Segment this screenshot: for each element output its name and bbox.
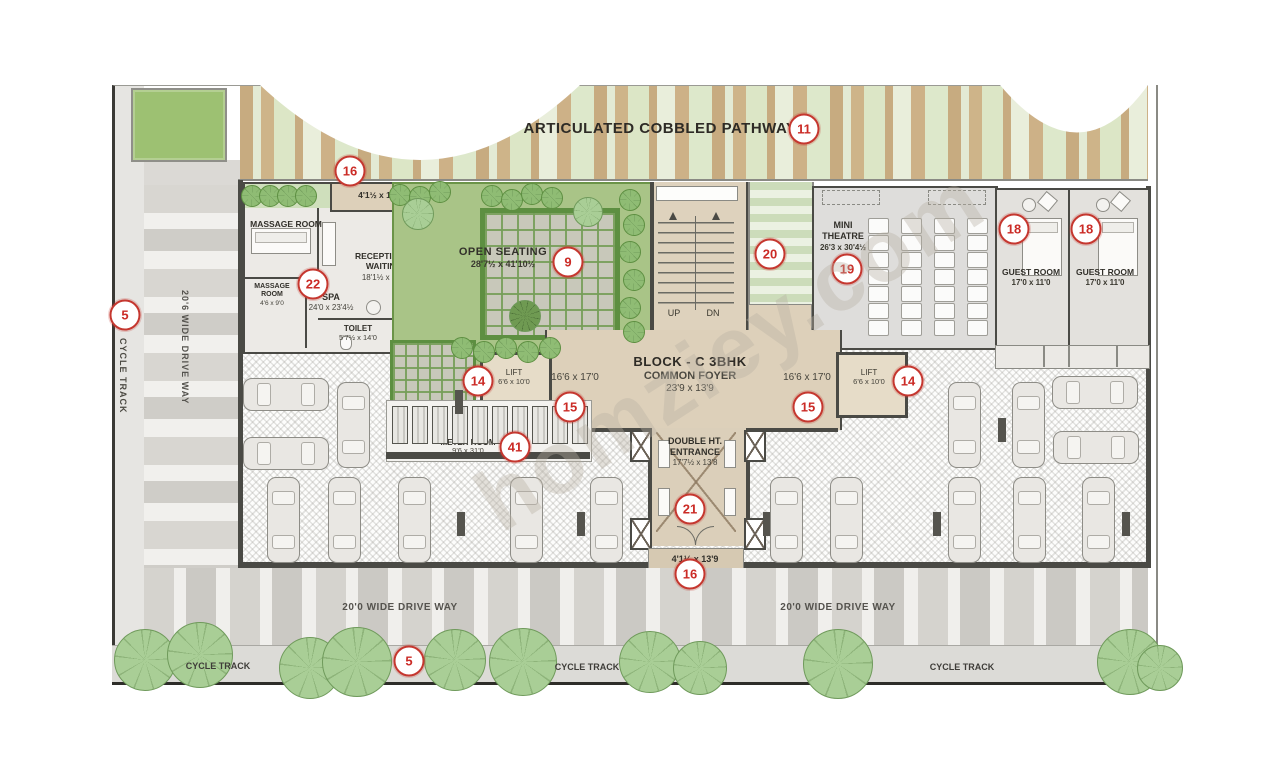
badge-theatre: 19	[832, 254, 863, 285]
tree-icon	[322, 627, 392, 697]
badge-meter-room: 41	[500, 432, 531, 463]
bush-icon	[623, 269, 645, 291]
guest-table	[1096, 198, 1110, 212]
meter-panel	[532, 406, 548, 444]
bush-icon	[517, 341, 539, 363]
column-pillar	[933, 512, 941, 536]
theatre-seat	[901, 218, 922, 234]
column-pillar	[998, 418, 1006, 442]
bottom-driveway-right-label: 20'0 WIDE DRIVE WAY	[780, 602, 895, 614]
car	[1082, 477, 1115, 563]
car	[243, 437, 329, 470]
theatre-seat	[868, 269, 889, 285]
stair-landing	[656, 186, 738, 201]
column-pillar	[1122, 512, 1130, 536]
tree-icon	[673, 641, 727, 695]
floor-plan: CYCLE TRACK 20'6 WIDE DRIVE WAY ARTICULA…	[0, 0, 1280, 772]
badge-entrance: 21	[675, 494, 706, 525]
lawn	[131, 88, 227, 162]
badge-lift-right: 14	[893, 366, 924, 397]
tree-icon	[573, 197, 603, 227]
stair-up-label: UP	[668, 308, 681, 318]
theatre-seat	[934, 320, 955, 336]
theatre-seat	[868, 218, 889, 234]
bush-icon	[473, 341, 495, 363]
meter-panel	[392, 406, 408, 444]
theatre-seat	[934, 218, 955, 234]
car	[328, 477, 361, 563]
car	[337, 382, 370, 468]
entrance-pier	[744, 430, 766, 462]
badge-cycle-left: 5	[110, 300, 141, 331]
theatre-lobby-1	[822, 190, 880, 205]
theatre-seat	[868, 252, 889, 268]
left-driveway-label: 20'6 WIDE DRIVE WAY	[180, 290, 190, 404]
meter-room-dim: 9'6 x 31'0	[452, 447, 484, 455]
tree-icon	[509, 300, 541, 332]
lift-left-dim: 6'6 x 10'0	[498, 378, 530, 386]
badge-open-seating: 9	[553, 247, 584, 278]
tree-icon	[167, 622, 233, 688]
theatre-seat	[967, 286, 988, 302]
open-seating-label: OPEN SEATING	[459, 246, 547, 259]
entrance-label-1: DOUBLE HT.	[668, 436, 722, 446]
guest-room-1-label: GUEST ROOM	[1002, 268, 1060, 278]
foyer-label: COMMON FOYER	[644, 370, 736, 383]
bush-icon	[619, 241, 641, 263]
bush-icon	[451, 337, 473, 359]
block-title: BLOCK - C 3BHK	[633, 355, 746, 370]
massage-room-small-label-2: ROOM	[261, 291, 283, 299]
top-left-band	[144, 160, 240, 185]
badge-wing-right: 15	[793, 392, 824, 423]
guest-table	[1022, 198, 1036, 212]
theatre-seat	[868, 286, 889, 302]
pathway-label: ARTICULATED COBBLED PATHWAY	[524, 120, 797, 137]
entrance-pier	[630, 430, 652, 462]
bath-divider	[1116, 345, 1118, 367]
theatre-seat	[901, 286, 922, 302]
badge-spa: 22	[298, 269, 329, 300]
theatre-seat	[967, 218, 988, 234]
theatre-seat	[901, 303, 922, 319]
lift-right-label: LIFT	[861, 368, 877, 377]
theatre-seat	[868, 320, 889, 336]
stair-steps	[658, 222, 734, 304]
car	[1013, 477, 1046, 563]
cycle-track-label-1: CYCLE TRACK	[186, 661, 251, 671]
spa-tub	[366, 300, 381, 315]
theatre-seat	[934, 286, 955, 302]
car	[267, 477, 300, 563]
badge-entry-strip: 16	[335, 156, 366, 187]
theatre-seat	[934, 269, 955, 285]
car	[948, 477, 981, 563]
column-pillar	[455, 390, 463, 414]
theatre-label-2: THEATRE	[822, 231, 864, 241]
car	[1052, 376, 1138, 409]
lift-left-label: LIFT	[506, 368, 522, 377]
entrance-dim: 17'7½ x 13'8	[673, 459, 718, 468]
car	[830, 477, 863, 563]
bush-icon	[623, 321, 645, 343]
badge-guest-1: 18	[999, 214, 1030, 245]
cycle-track-label-3: CYCLE TRACK	[930, 662, 995, 672]
bush-icon	[539, 337, 561, 359]
bush-icon	[619, 297, 641, 319]
cycle-track-label-2: CYCLE TRACK	[555, 662, 620, 672]
bush-icon	[495, 337, 517, 359]
stair-divider	[695, 216, 696, 310]
tree-icon	[1137, 645, 1183, 691]
theatre-seat	[967, 320, 988, 336]
bottom-driveway-left-label: 20'0 WIDE DRIVE WAY	[342, 602, 457, 614]
bush-icon	[623, 214, 645, 236]
theatre-seat	[967, 269, 988, 285]
bush-icon	[429, 181, 451, 203]
lift-right-dim: 6'6 x 10'0	[853, 378, 885, 386]
bush-icon	[295, 185, 317, 207]
foyer-dim: 23'9 x 13'9	[666, 383, 714, 394]
guest-room-2-dim: 17'0 x 11'0	[1086, 279, 1125, 288]
bush-icon	[501, 189, 523, 211]
car	[590, 477, 623, 563]
wellness-div4	[318, 318, 402, 320]
bath-divider	[1068, 345, 1070, 367]
badge-entrance-strip: 16	[675, 559, 706, 590]
theatre-dim: 26'3 x 30'4½	[820, 244, 866, 253]
toilet-label: TOILET	[344, 324, 372, 333]
theatre-seat	[967, 303, 988, 319]
entrance-label-2: ENTRANCE	[670, 447, 720, 457]
stair-arrow-dn	[712, 212, 720, 220]
guest-room-1-dim: 17'0 x 11'0	[1012, 279, 1051, 288]
theatre-seat	[967, 235, 988, 251]
car	[1053, 431, 1139, 464]
car	[243, 378, 329, 411]
massage-bed	[251, 228, 311, 254]
theatre-seat	[901, 320, 922, 336]
car	[1012, 382, 1045, 468]
stair-dn-label: DN	[707, 308, 720, 318]
column-pillar	[577, 512, 585, 536]
wing-right-dim: 16'6 x 17'0	[783, 372, 831, 383]
property-line-right	[1156, 85, 1158, 683]
bush-icon	[541, 187, 563, 209]
theatre-seat	[901, 252, 922, 268]
entrance-bench	[724, 488, 736, 516]
wing-left-dim: 16'6 x 17'0	[551, 372, 599, 383]
badge-guest-2: 18	[1071, 214, 1102, 245]
column-pillar	[457, 512, 465, 536]
open-seating-dim: 28'7½ x 41'10½	[471, 260, 535, 270]
bath-divider	[1043, 345, 1045, 367]
theatre-label-1: MINI	[834, 220, 853, 230]
theatre-seat	[934, 235, 955, 251]
meter-room-wall	[386, 452, 590, 459]
badge-wing-left: 15	[555, 392, 586, 423]
meter-panel	[472, 406, 488, 444]
theatre-seat	[934, 303, 955, 319]
entrance-bench	[724, 440, 736, 468]
garden-pavers	[480, 208, 620, 340]
massage-room-small-label-1: MASSAGE	[254, 283, 289, 291]
tree-icon	[424, 629, 486, 691]
car	[510, 477, 543, 563]
badge-driveway-bottom: 5	[394, 646, 425, 677]
car	[770, 477, 803, 563]
tree-icon	[402, 198, 434, 230]
bush-icon	[481, 185, 503, 207]
meter-panel	[432, 406, 448, 444]
badge-ramp: 20	[755, 239, 786, 270]
bush-icon	[521, 183, 543, 205]
theatre-seat	[934, 252, 955, 268]
theatre-seat	[868, 235, 889, 251]
massage-room-label: MASSAGE ROOM	[250, 220, 322, 230]
theatre-seat	[901, 235, 922, 251]
entrance-bench	[658, 488, 670, 516]
car	[398, 477, 431, 563]
bush-icon	[619, 189, 641, 211]
badge-lift-left: 14	[463, 366, 494, 397]
left-cycle-track-label: CYCLE TRACK	[118, 338, 128, 414]
guest-room-2-label: GUEST ROOM	[1076, 268, 1134, 278]
badge-pathway: 11	[789, 114, 820, 145]
theatre-seat	[901, 269, 922, 285]
tree-icon	[489, 628, 557, 696]
theatre-lobby-2	[928, 190, 986, 205]
guest-baths	[995, 345, 1150, 369]
tree-icon	[619, 631, 681, 693]
reception-sofa	[322, 222, 336, 266]
entrance-pier	[630, 518, 652, 550]
toilet-dim: 5'7½ x 14'0	[339, 334, 377, 342]
tree-icon	[803, 629, 873, 699]
meter-panel	[412, 406, 428, 444]
stair-arrow-up	[669, 212, 677, 220]
theatre-seat	[868, 303, 889, 319]
theatre-seat	[967, 252, 988, 268]
building-top-line	[238, 179, 1148, 181]
car	[948, 382, 981, 468]
massage-room-small-dim: 4'6 x 9'0	[260, 300, 284, 307]
spa-dim: 24'0 x 23'4½	[309, 304, 354, 313]
